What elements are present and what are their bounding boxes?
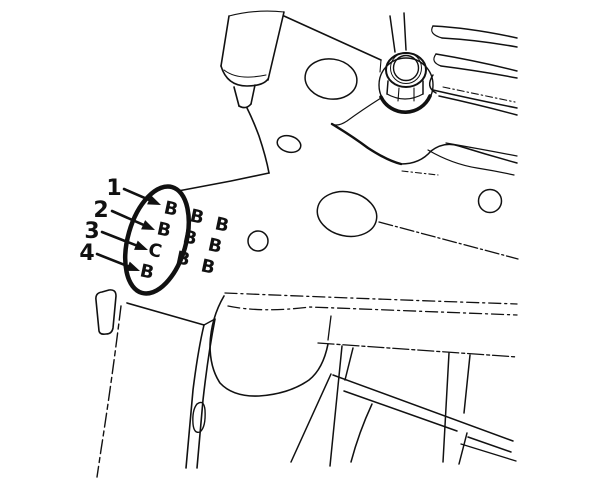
stamped-letter: B xyxy=(174,247,192,270)
web-ribs-bottom xyxy=(291,343,517,466)
callout-arrowhead-icon xyxy=(141,220,155,230)
stamp-letters-layer: BBBBBBCBBB xyxy=(138,197,231,283)
callout-arrowhead-icon xyxy=(126,262,140,271)
stamped-letter: B xyxy=(206,234,224,257)
pillar-slot-hole xyxy=(193,402,205,432)
flange-ribs-top-right xyxy=(332,26,518,259)
stamped-letter: B xyxy=(155,218,173,241)
diagram-canvas: BBBBBBCBBB 1234 xyxy=(0,0,608,490)
engine-block-line-art: BBBBBBCBBB 1234 xyxy=(0,0,608,490)
hole-round-left xyxy=(248,231,268,251)
callout-arrowhead-icon xyxy=(134,241,148,250)
stamped-letter: B xyxy=(188,205,206,228)
block-top-edges xyxy=(178,16,381,191)
stamped-letter: B xyxy=(213,213,231,236)
stamped-letter: B xyxy=(138,260,156,283)
stamped-letter: B xyxy=(181,226,199,249)
hole-round-right xyxy=(479,190,502,213)
stud-nut xyxy=(379,13,433,112)
hole-small xyxy=(275,133,302,155)
stamped-letter: B xyxy=(162,197,180,220)
callout-arrow xyxy=(102,232,140,247)
rounded-panel xyxy=(210,296,328,396)
block-corner-left xyxy=(96,290,331,477)
stud-line xyxy=(390,16,395,52)
stamped-letter: C xyxy=(146,239,163,262)
hole-large-mid xyxy=(313,186,381,242)
callout-number: 4 xyxy=(79,241,94,266)
stud-line xyxy=(404,13,406,50)
hole-large-top xyxy=(302,56,359,103)
tube xyxy=(221,11,284,173)
stamped-letter: B xyxy=(199,255,217,278)
flange-joint-lines xyxy=(225,293,517,315)
corner-tab xyxy=(96,290,116,334)
